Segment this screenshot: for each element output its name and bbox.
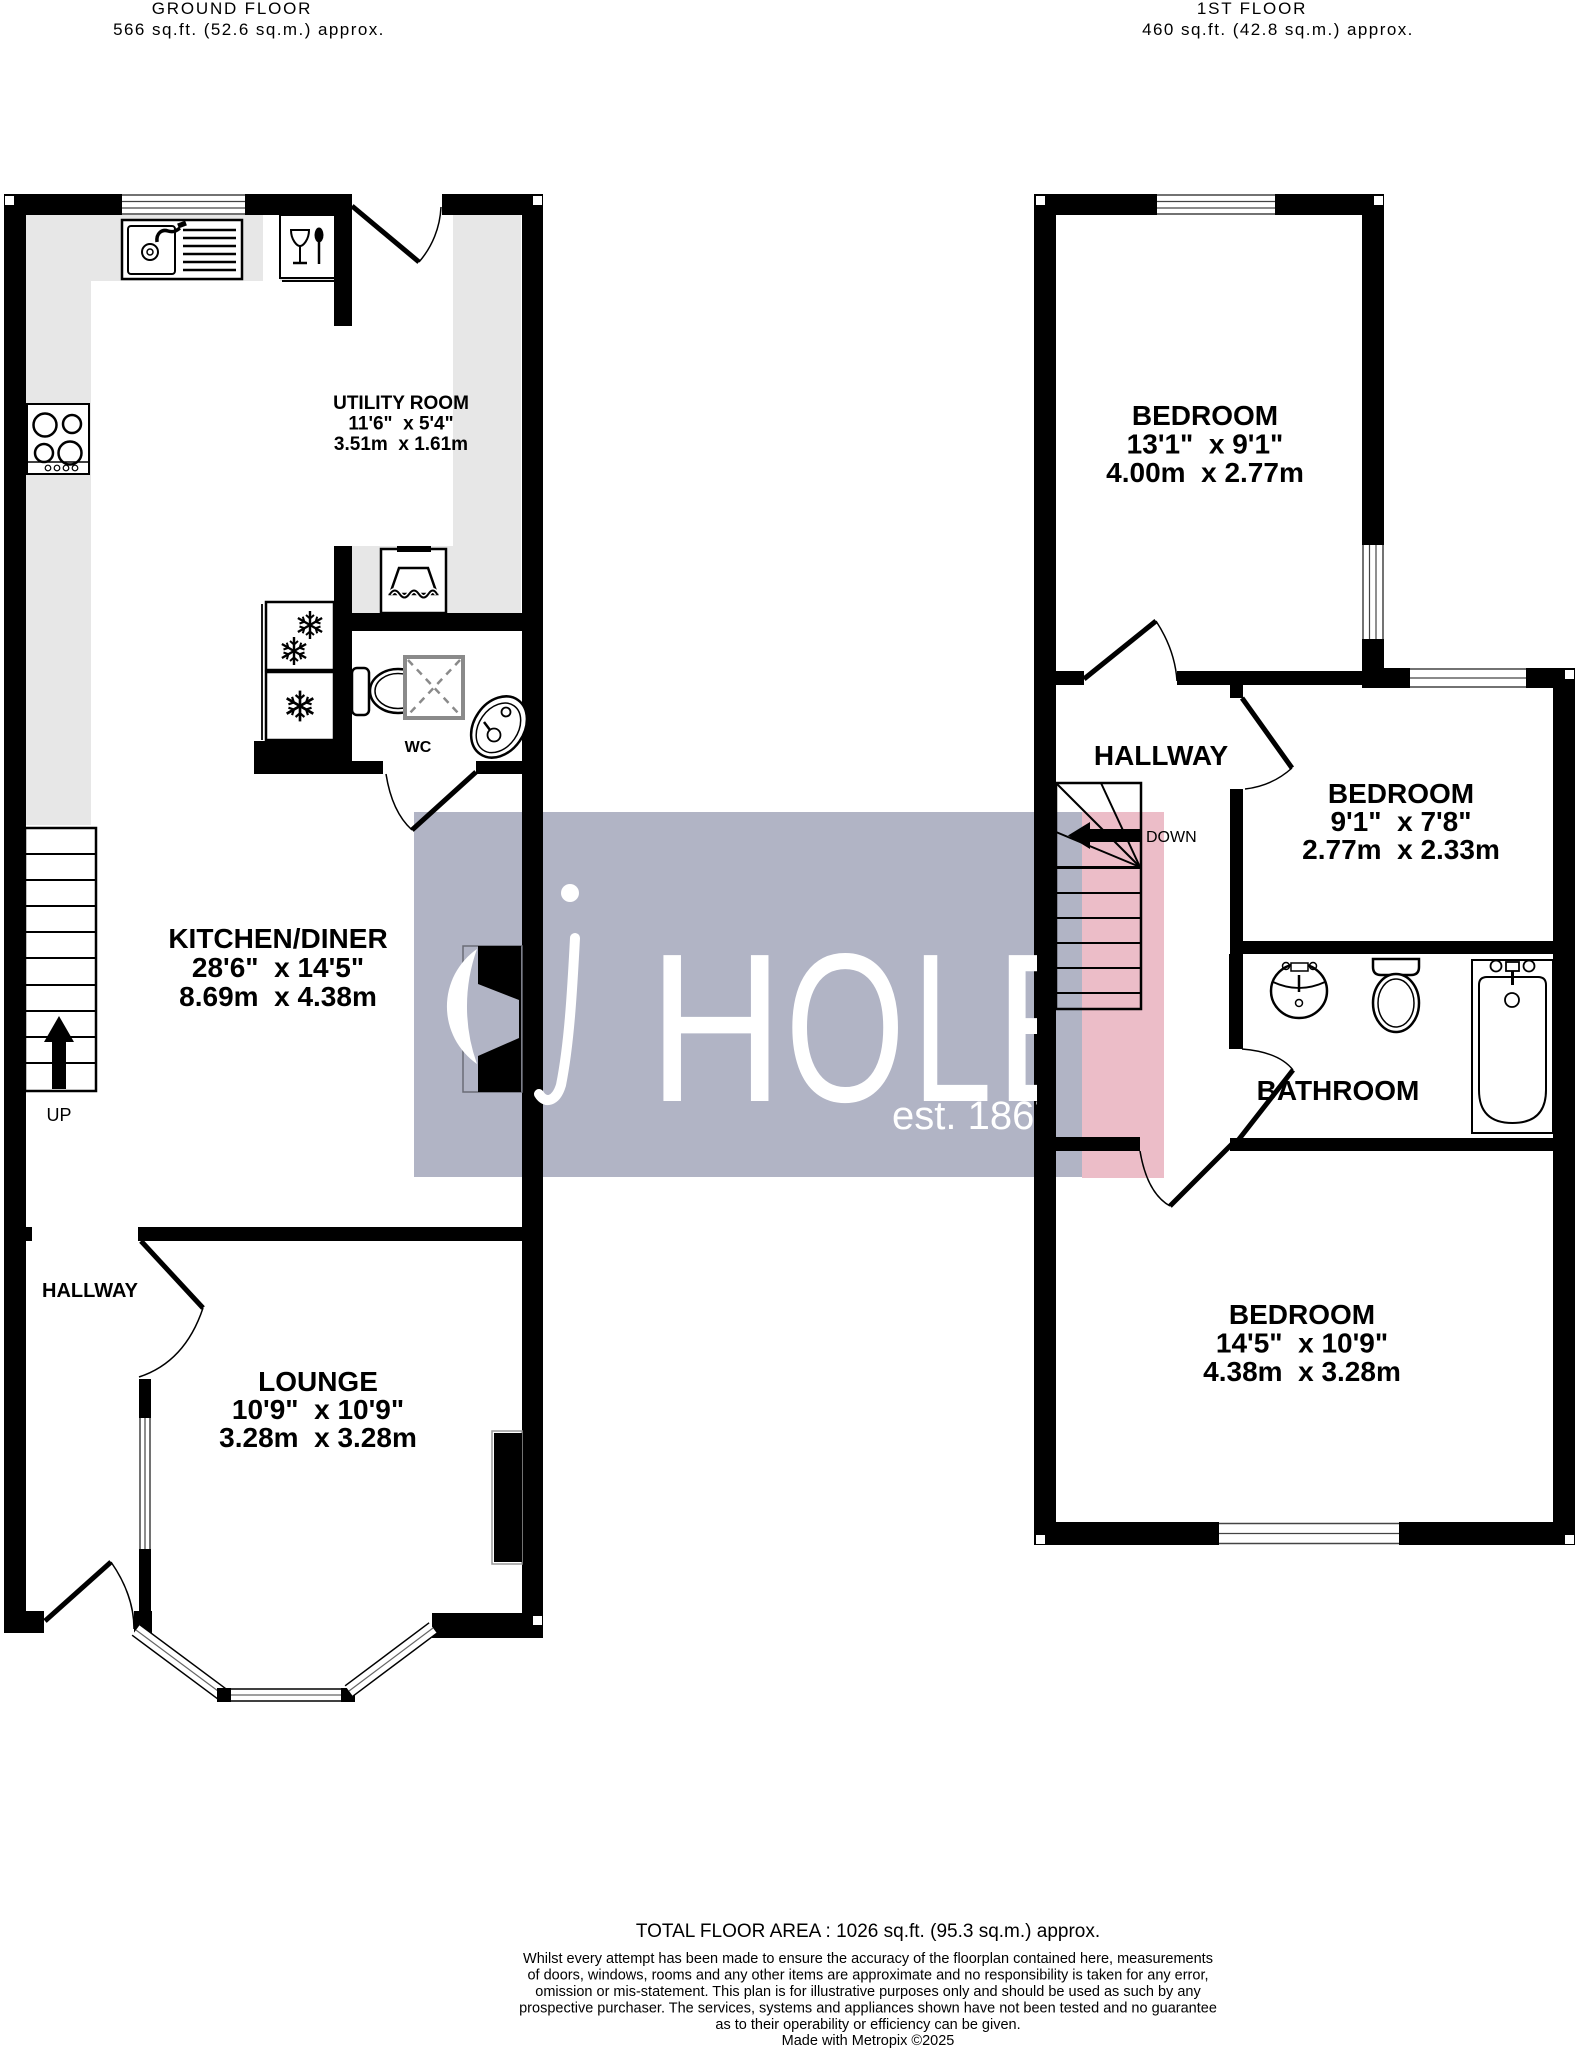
svg-text:of doors, windows, rooms and a: of doors, windows, rooms and any other i… (527, 1968, 1208, 1984)
svg-text:KITCHEN/DINER: KITCHEN/DINER (168, 923, 387, 954)
svg-text:WC: WC (405, 739, 432, 756)
svg-text:O: O (785, 910, 905, 1146)
svg-text:BEDROOM: BEDROOM (1328, 778, 1474, 809)
svg-text:4.00m x 2.77m: 4.00m x 2.77m (1106, 457, 1304, 488)
svg-text:BATHROOM: BATHROOM (1257, 1075, 1420, 1106)
svg-text:14'5" x 10'9": 14'5" x 10'9" (1216, 1328, 1388, 1359)
svg-text:BEDROOM: BEDROOM (1229, 1299, 1375, 1330)
svg-text:HALLWAY: HALLWAY (42, 1280, 139, 1302)
svg-text:11'6" x 5'4": 11'6" x 5'4" (348, 414, 453, 435)
svg-text:BEDROOM: BEDROOM (1132, 400, 1278, 431)
svg-text:8.69m x 4.38m: 8.69m x 4.38m (179, 981, 377, 1012)
svg-text:prospective purchaser. The ser: prospective purchaser. The services, sys… (519, 2001, 1217, 2017)
svg-text:UP: UP (46, 1105, 71, 1125)
svg-text:HALLWAY: HALLWAY (1094, 740, 1229, 771)
svg-text:1ST FLOOR: 1ST FLOOR (1197, 0, 1307, 18)
svg-text:460 sq.ft. (42.8 sq.m.) approx: 460 sq.ft. (42.8 sq.m.) approx. (1142, 20, 1414, 39)
svg-text:28'6" x 14'5": 28'6" x 14'5" (192, 952, 364, 983)
svg-text:4.38m x 3.28m: 4.38m x 3.28m (1203, 1356, 1401, 1387)
svg-text:omission or mis-statement. Thi: omission or mis-statement. This plan is … (535, 1984, 1201, 2000)
svg-text:UTILITY ROOM: UTILITY ROOM (333, 393, 469, 414)
svg-text:Made with Metropix ©2025: Made with Metropix ©2025 (782, 2033, 955, 2048)
svg-text:TOTAL FLOOR AREA : 1026 sq.ft.: TOTAL FLOOR AREA : 1026 sq.ft. (95.3 sq.… (636, 1921, 1100, 1942)
svg-text:3.28m x 3.28m: 3.28m x 3.28m (219, 1422, 417, 1453)
svg-text:13'1" x 9'1": 13'1" x 9'1" (1127, 429, 1284, 460)
svg-text:2.77m x 2.33m: 2.77m x 2.33m (1302, 834, 1500, 865)
svg-text:3.51m x 1.61m: 3.51m x 1.61m (334, 434, 468, 455)
svg-text:GROUND FLOOR: GROUND FLOOR (152, 0, 312, 18)
svg-text:Whilst every attempt has been: Whilst every attempt has been made to en… (523, 1951, 1213, 1967)
svg-text:10'9" x 10'9": 10'9" x 10'9" (232, 1394, 404, 1425)
svg-text:566 sq.ft. (52.6 sq.m.) approx: 566 sq.ft. (52.6 sq.m.) approx. (113, 20, 385, 39)
svg-text:LOUNGE: LOUNGE (258, 1366, 378, 1397)
svg-text:est. 1867: est. 1867 (892, 1094, 1057, 1138)
svg-text:H: H (648, 911, 784, 1147)
svg-text:9'1" x 7'8": 9'1" x 7'8" (1330, 806, 1471, 837)
svg-text:as to their operability or eff: as to their operability or efficiency ca… (715, 2017, 1020, 2033)
